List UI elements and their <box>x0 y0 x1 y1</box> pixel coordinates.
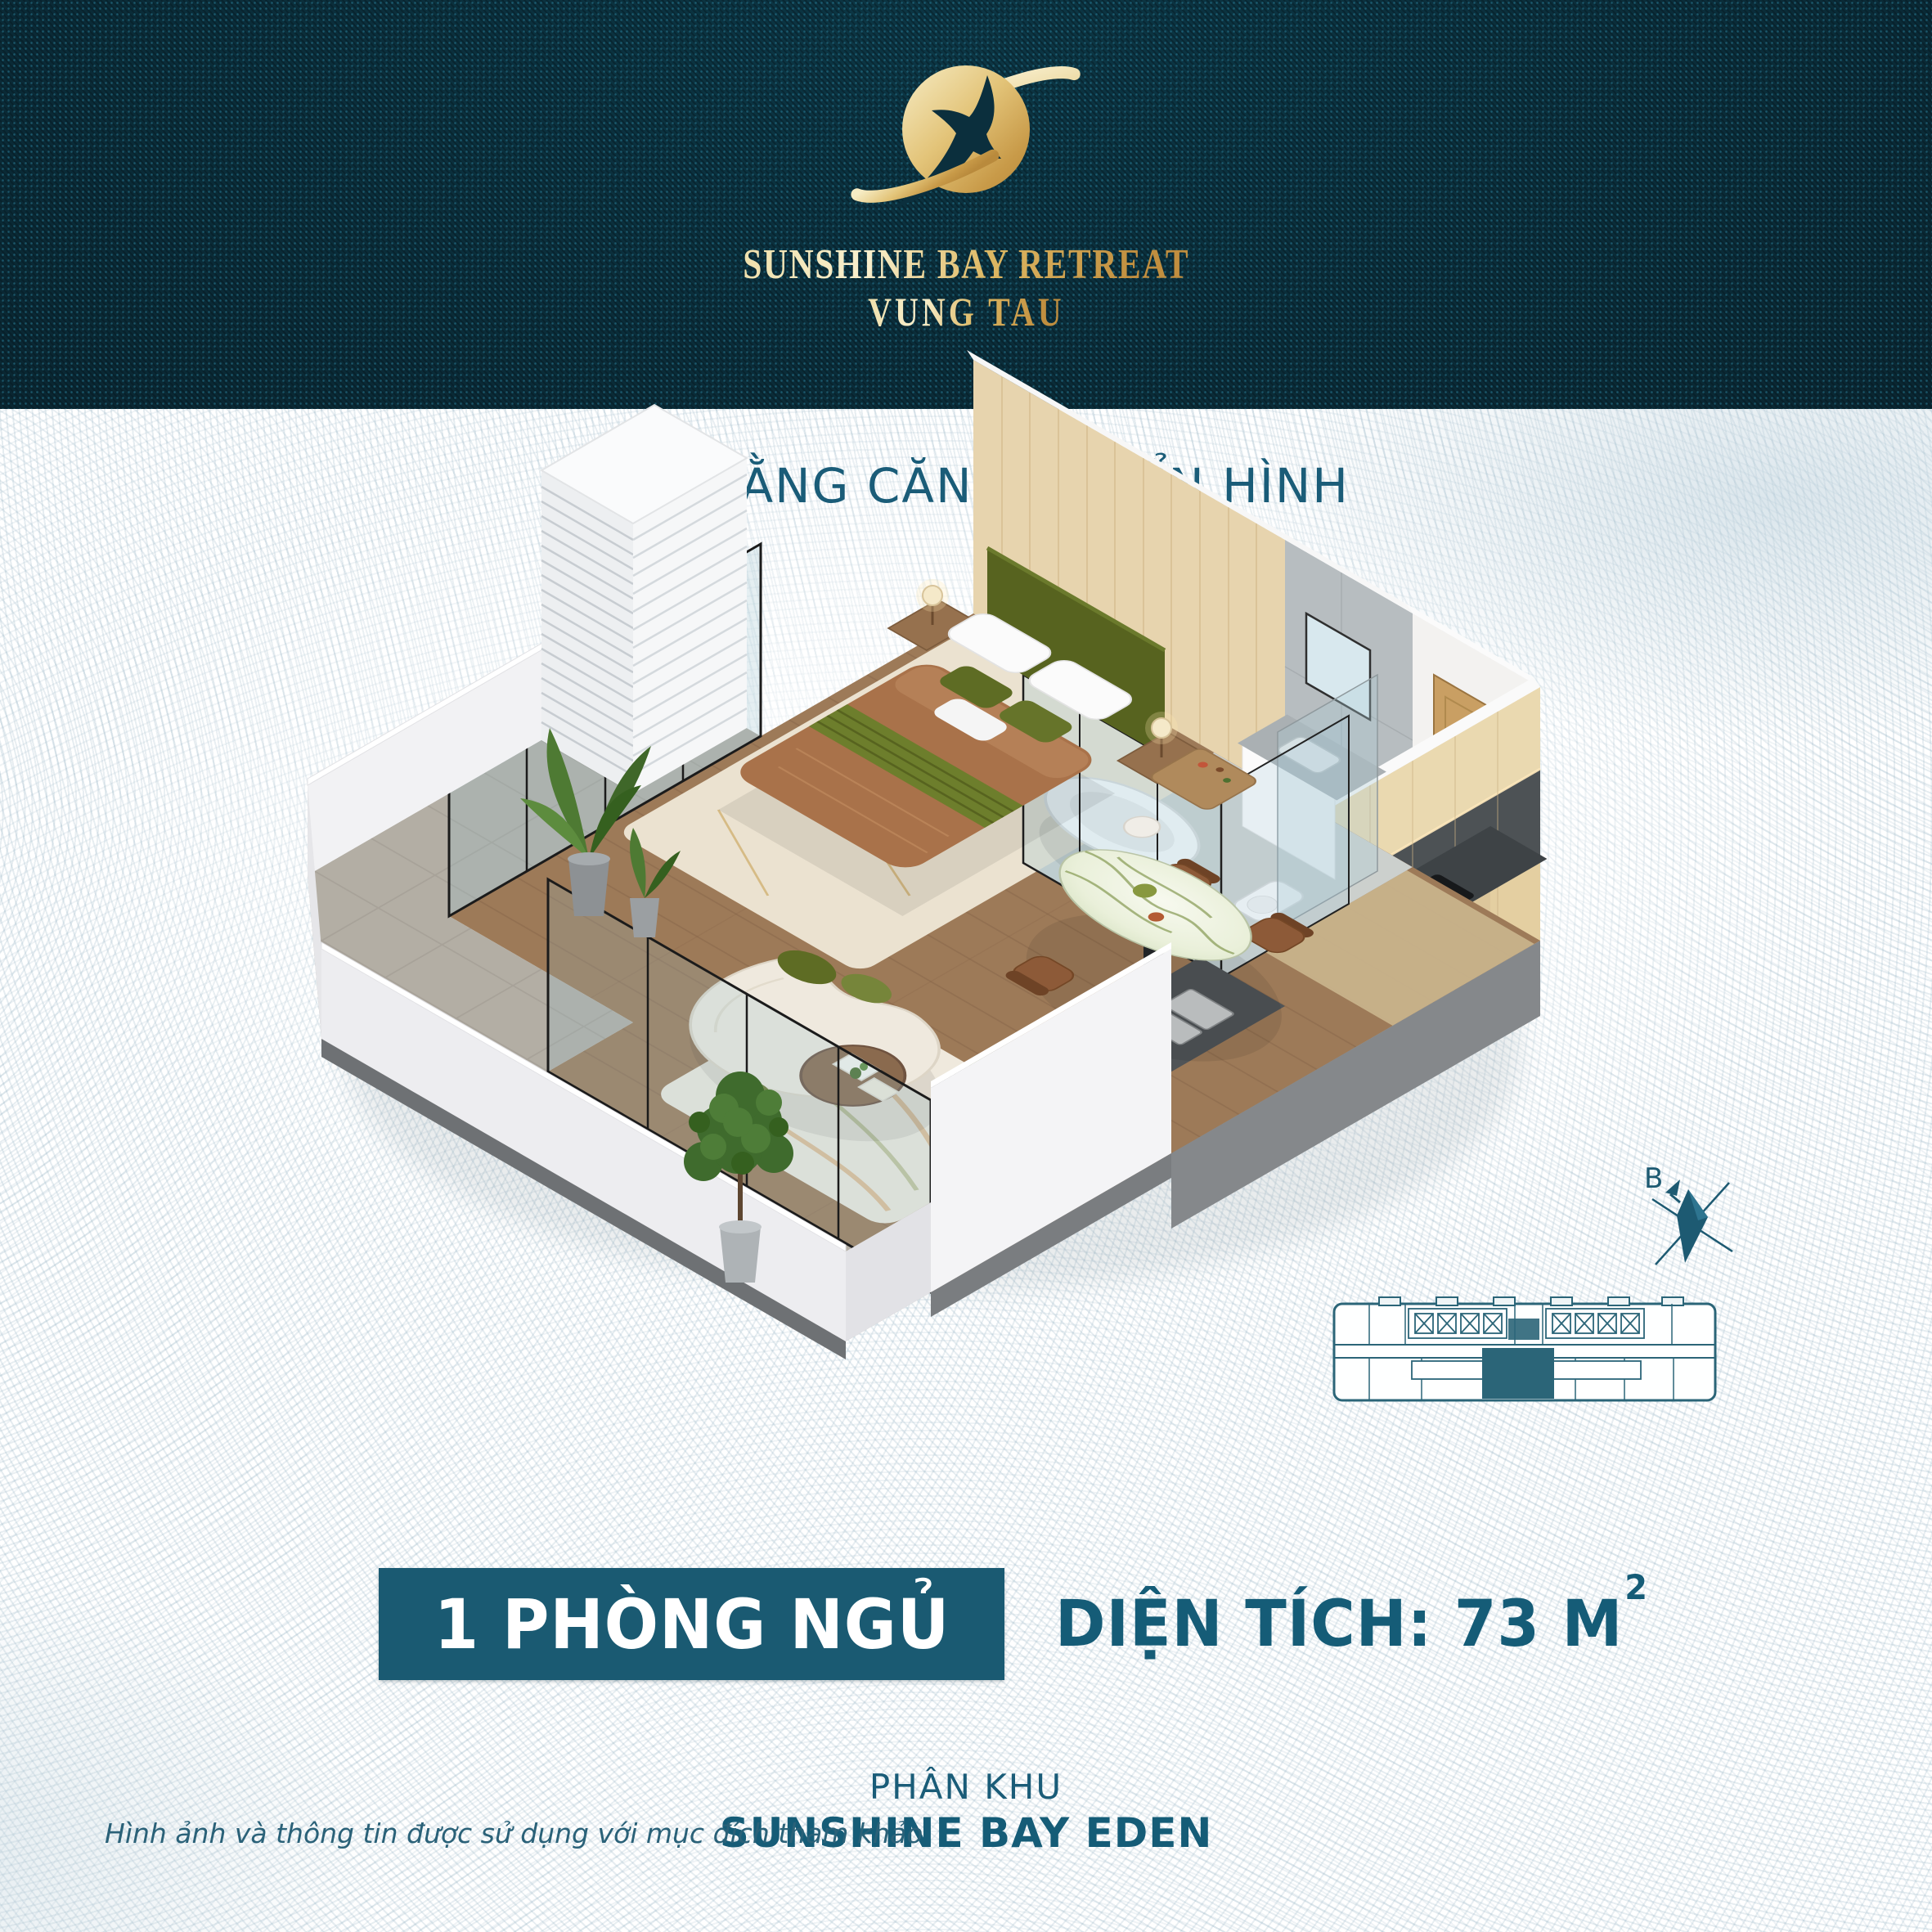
apartment-3d-render <box>196 344 1636 1407</box>
poster: SUNSHINE BAY RETREAT VUNG TAU MẶT BẰNG C… <box>0 0 1932 1932</box>
zone-label: PHÂN KHU <box>0 1767 1932 1807</box>
building-keyplan-icon <box>1330 1269 1721 1418</box>
brand-name-text: SUNSHINE BAY RETREAT <box>743 240 1189 289</box>
area-text: DIỆN TÍCH: 73 M2 <box>1055 1568 1678 1680</box>
bedroom-count-banner: 1 PHÒNG NGỦ <box>379 1568 1004 1680</box>
area-label: DIỆN TÍCH: 73 M <box>1055 1588 1623 1661</box>
brand-name: SUNSHINE BAY RETREAT <box>0 240 1932 289</box>
compass-label: B <box>1644 1162 1663 1195</box>
compass-north-icon: B <box>1638 1160 1744 1283</box>
disclaimer-text: Hình ảnh và thông tin được sử dụng với m… <box>105 1817 923 1849</box>
planet-star-icon <box>737 29 1195 242</box>
highlighted-unit <box>1482 1348 1554 1399</box>
area-superscript: 2 <box>1624 1567 1648 1607</box>
bedside-lamp <box>1152 718 1171 738</box>
bedroom-count-text: 1 PHÒNG NGỦ <box>434 1584 949 1665</box>
brand-location-text: VUNG TAU <box>868 288 1065 335</box>
bedside-lamp <box>923 586 942 605</box>
brand-location: VUNG TAU <box>0 288 1932 335</box>
louver-box <box>541 405 747 793</box>
